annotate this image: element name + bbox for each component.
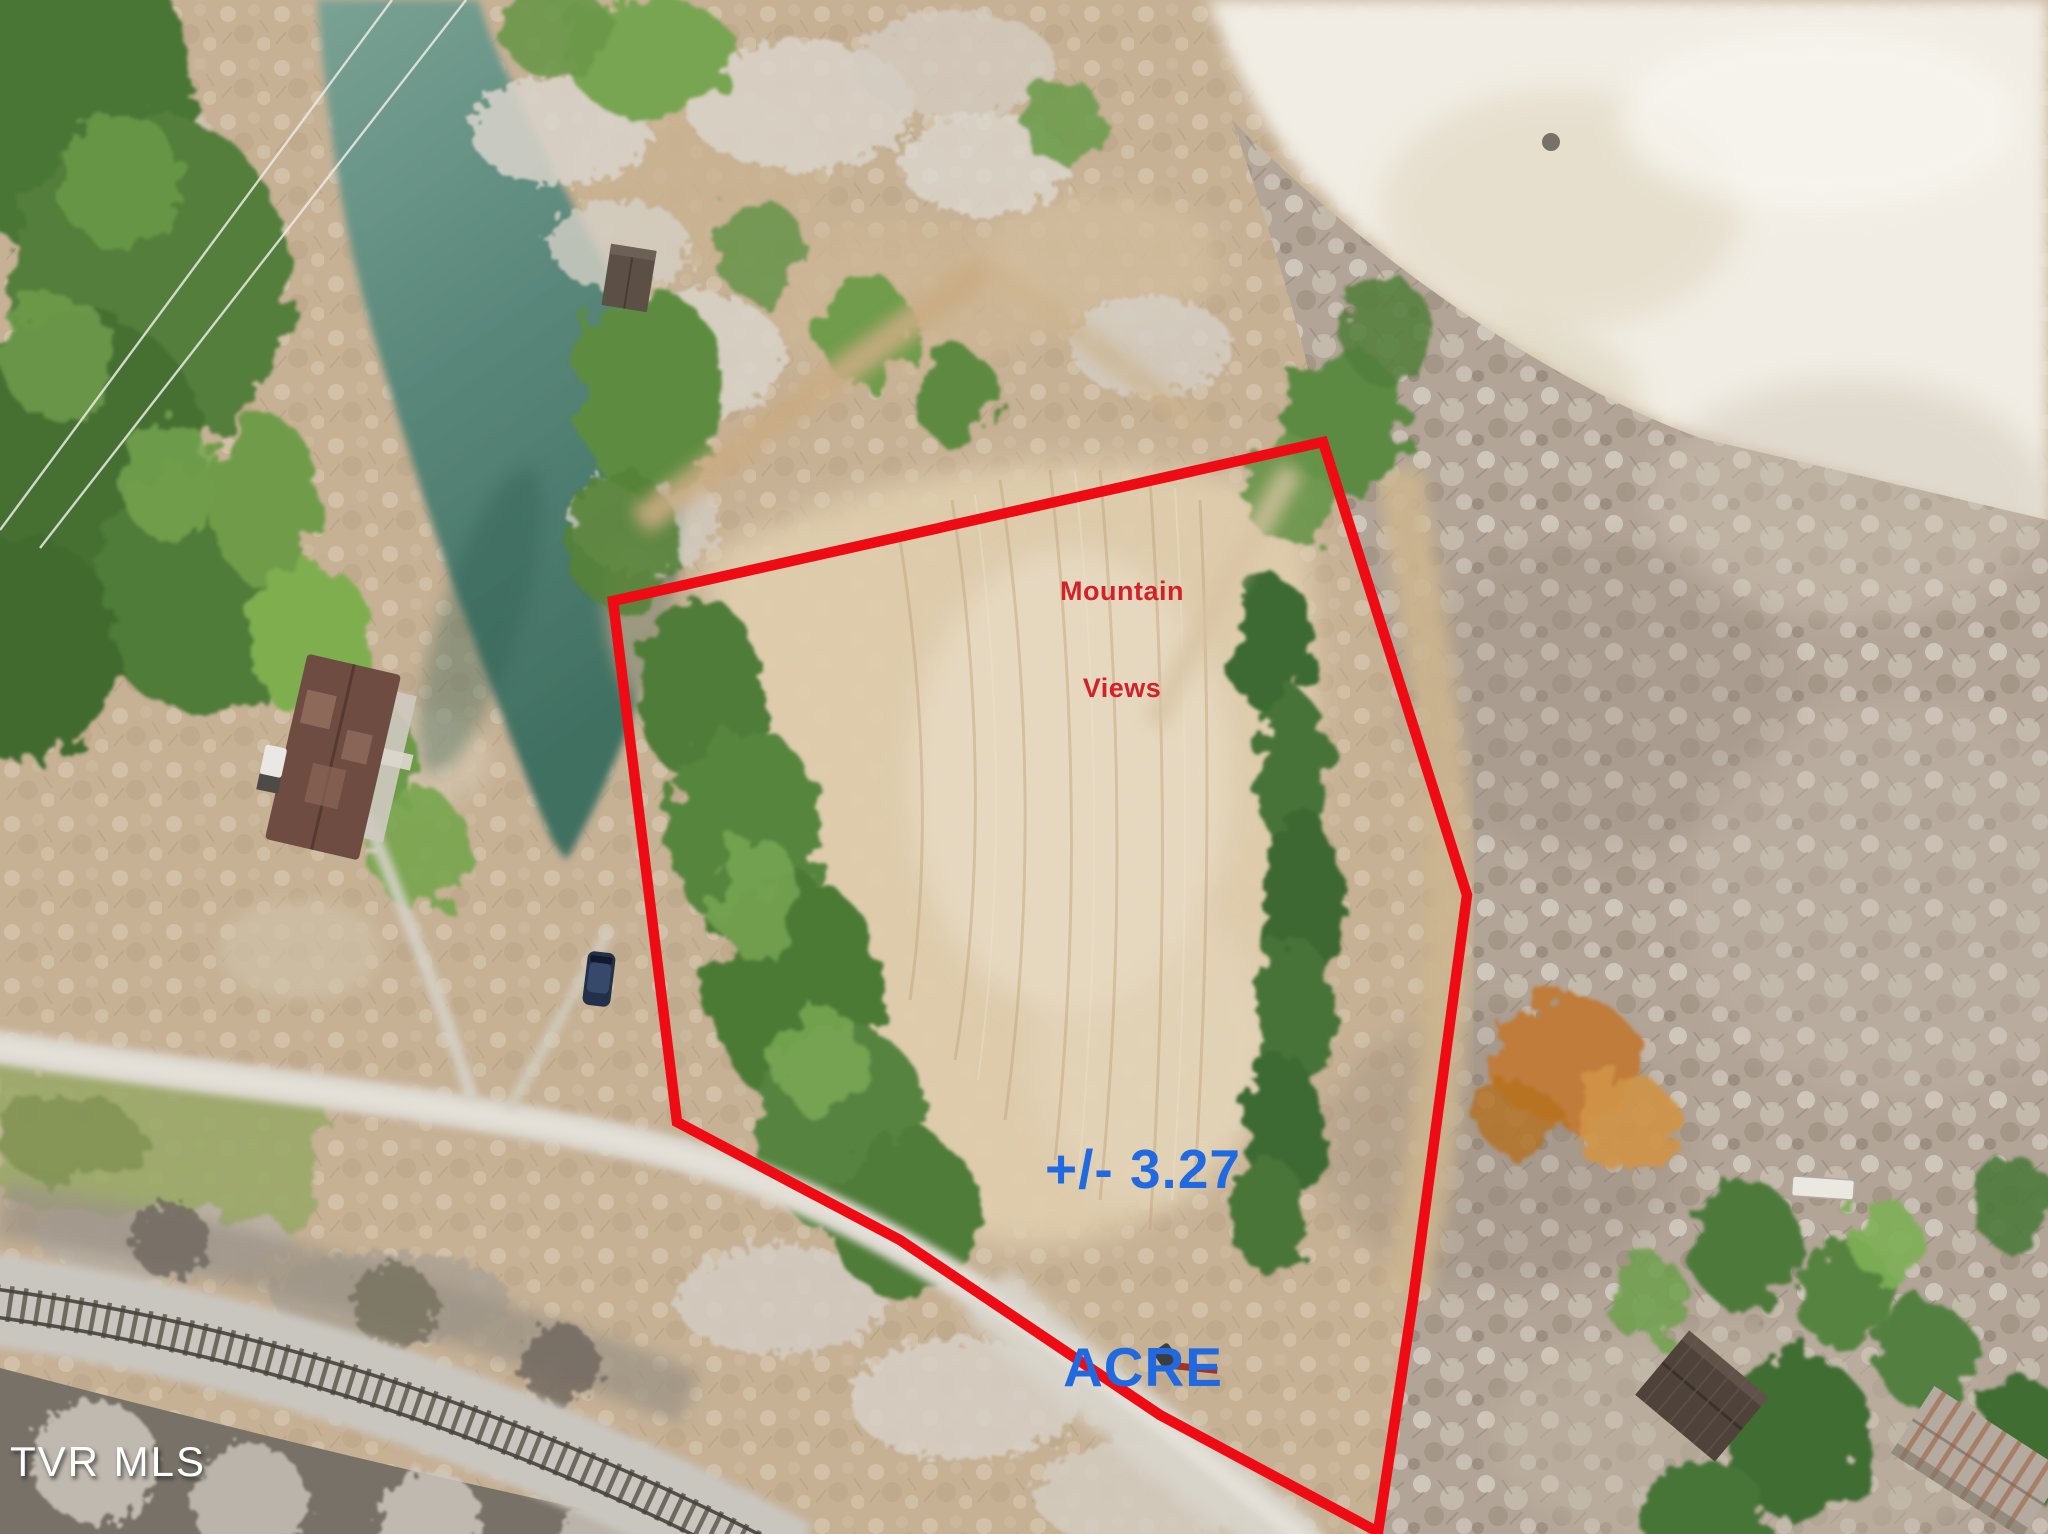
acreage-line2: ACRE <box>1045 1334 1241 1400</box>
acreage-line1: +/- 3.27 <box>1045 1136 1241 1202</box>
mountain-views-line1: Mountain <box>1060 575 1184 607</box>
aerial-photo-art <box>0 0 2048 1534</box>
acreage-label: +/- 3.27 ACRE <box>1045 1004 1241 1466</box>
mountain-views-label: Mountain Views <box>1060 510 1184 737</box>
boathouse-shed <box>601 244 656 312</box>
mls-watermark: TVR MLS <box>10 1438 206 1486</box>
mountain-views-line2: Views <box>1060 672 1184 704</box>
camper-trailer <box>1791 1176 1854 1200</box>
aerial-property-photo: Mountain Views +/- 3.27 ACRE TVR MLS <box>0 0 2048 1534</box>
